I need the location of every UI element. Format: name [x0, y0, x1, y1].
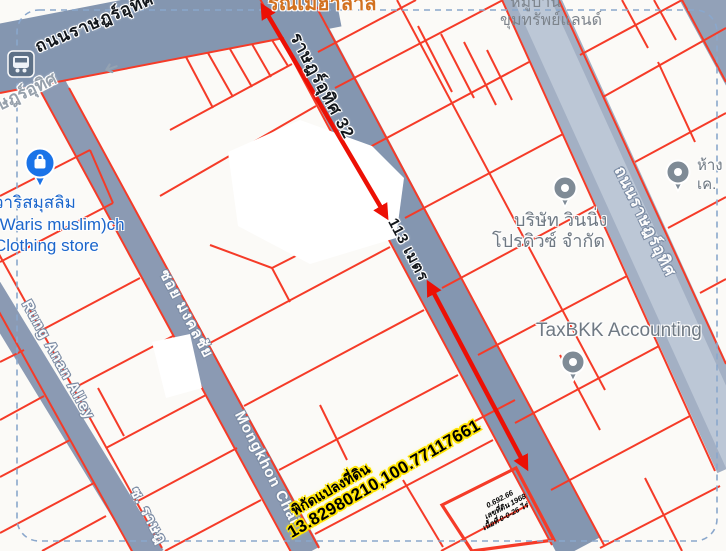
poi-label-taxbkk[interactable]: TaxBKK Accounting: [536, 320, 702, 342]
company-line1: บริษัท วินนิ่ง: [514, 210, 607, 231]
poi-label-village[interactable]: หมู่บ้าน ขุมทรัพย์แลนด์: [500, 0, 602, 30]
village-line2: ขุมทรัพย์แลนด์: [500, 12, 602, 30]
poi-label-hang[interactable]: ห้าง เค.: [697, 156, 723, 194]
waris-line3: Clothing store: [0, 235, 125, 257]
company-line2: โปรดิวซ์ จำกัด: [492, 231, 607, 252]
map-canvas[interactable]: ถนนราษฎร์อุทิศ ษฎร์อุทิศ ราษฎร์อุทิศ 32 …: [0, 0, 726, 551]
hang-line2: เค.: [697, 175, 723, 194]
poi-label-waris[interactable]: วาริสมุสลิม (Waris muslim)ch Clothing st…: [0, 192, 125, 257]
bus-icon[interactable]: [8, 51, 34, 77]
waris-line1: วาริสมุสลิม: [0, 192, 125, 214]
village-line1: หมู่บ้าน: [510, 0, 602, 12]
hang-line1: ห้าง: [697, 156, 723, 175]
poi-pin-icon[interactable]: [562, 351, 585, 382]
waris-line2: (Waris muslim)ch: [0, 214, 125, 236]
poi-pin-icon[interactable]: [554, 177, 577, 208]
poi-label-halal[interactable]: รณเมฮาลาล: [268, 0, 377, 16]
poi-label-company[interactable]: บริษัท วินนิ่ง โปรดิวซ์ จำกัด: [492, 210, 607, 252]
poi-pin-icon[interactable]: [667, 161, 690, 192]
